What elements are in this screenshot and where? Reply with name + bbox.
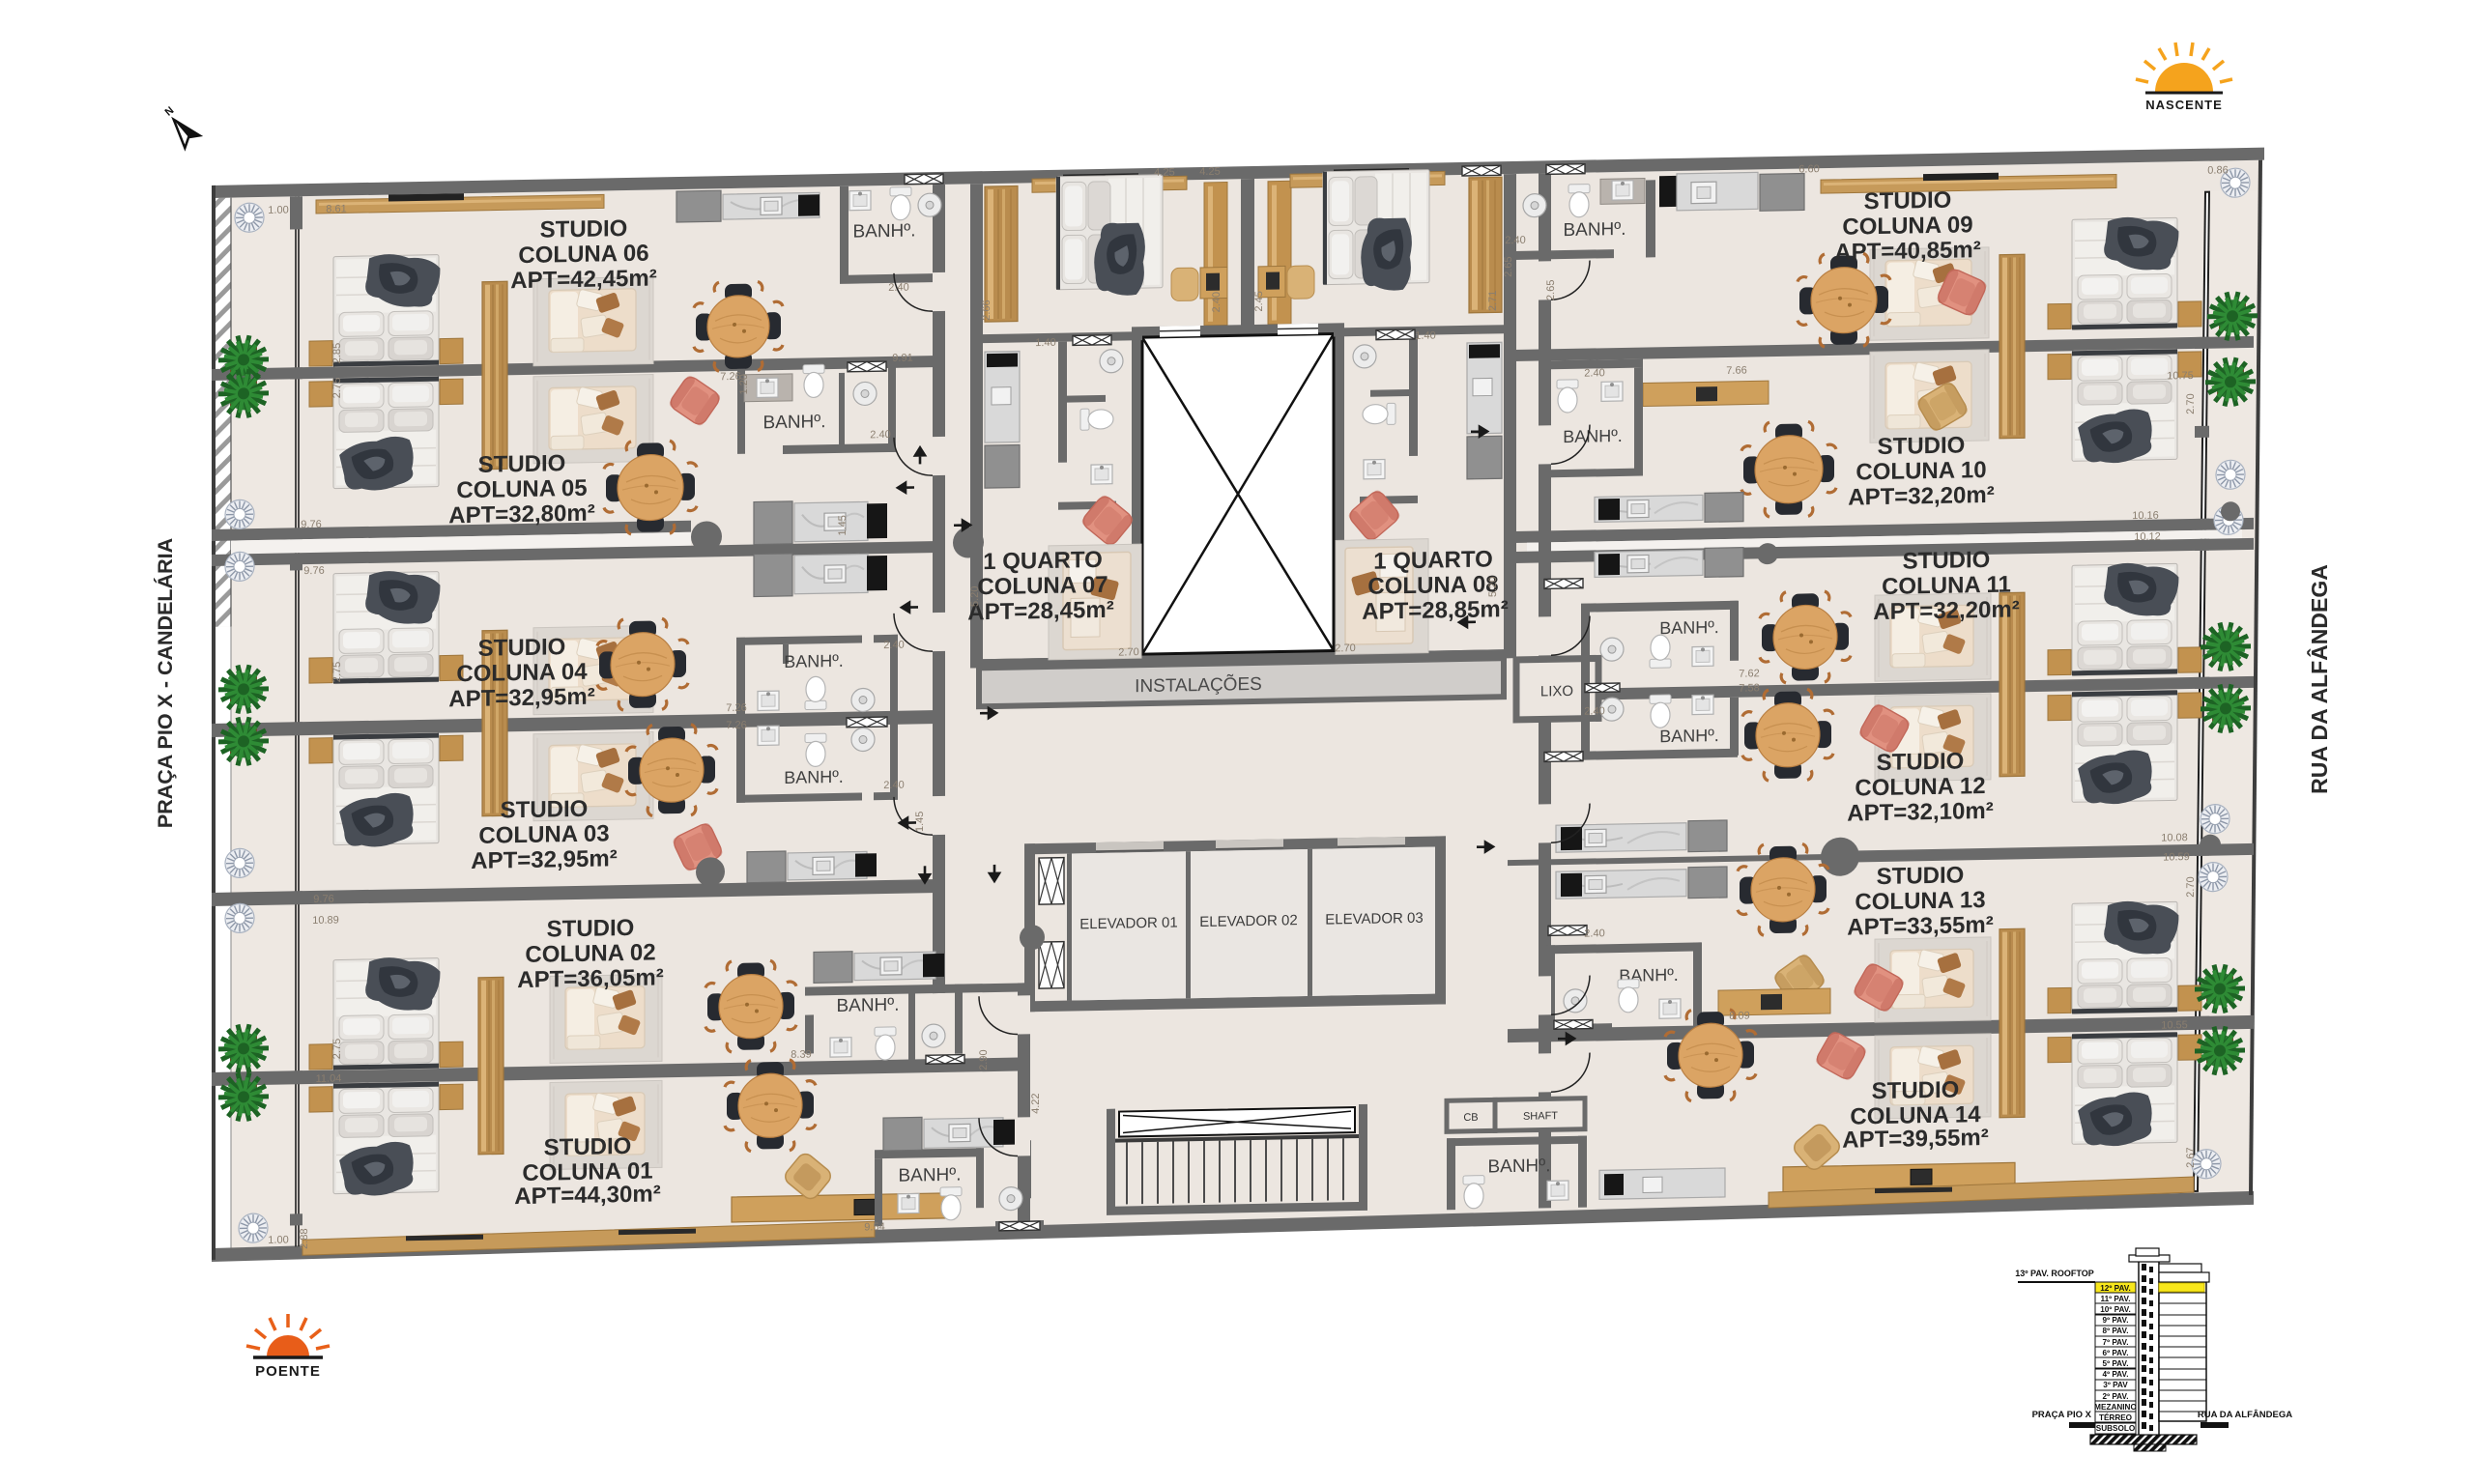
svg-text:7º PAV.: 7º PAV. — [2103, 1338, 2129, 1347]
svg-text:STUDIO: STUDIO — [501, 796, 589, 824]
svg-text:9º PAV.: 9º PAV. — [2103, 1316, 2129, 1325]
svg-text:APT=36,05m²: APT=36,05m² — [517, 964, 663, 993]
svg-text:COLUNA 13: COLUNA 13 — [1855, 887, 1985, 915]
svg-text:BANHº.: BANHº. — [784, 651, 844, 671]
svg-text:8.39: 8.39 — [791, 1048, 811, 1060]
svg-text:APT=40,85m²: APT=40,85m² — [1834, 237, 1980, 266]
svg-text:STUDIO: STUDIO — [1864, 187, 1952, 215]
svg-text:5.20: 5.20 — [1487, 577, 1499, 598]
svg-text:COLUNA 08: COLUNA 08 — [1367, 571, 1498, 599]
svg-text:0.86: 0.86 — [2207, 164, 2228, 176]
svg-text:PRAÇA PIO X: PRAÇA PIO X — [2032, 1410, 2092, 1420]
svg-text:BANHº.: BANHº. — [1659, 726, 1719, 746]
svg-text:COLUNA 11: COLUNA 11 — [1882, 571, 2011, 599]
svg-text:RUA DA ALFÂNDEGA: RUA DA ALFÂNDEGA — [2306, 564, 2332, 794]
svg-text:APT=42,45m²: APT=42,45m² — [510, 265, 656, 294]
svg-text:STUDIO: STUDIO — [478, 634, 566, 662]
svg-text:2.40: 2.40 — [1211, 292, 1223, 313]
svg-text:BANHº.: BANHº. — [1563, 219, 1625, 241]
svg-text:1 QUARTO: 1 QUARTO — [983, 547, 1103, 575]
svg-text:APT=33,55m²: APT=33,55m² — [1847, 912, 1993, 941]
svg-text:10.89: 10.89 — [312, 915, 339, 927]
svg-text:COLUNA 04: COLUNA 04 — [456, 659, 588, 688]
svg-text:2.40: 2.40 — [1505, 235, 1525, 246]
svg-text:ELEVADOR 03: ELEVADOR 03 — [1325, 910, 1423, 928]
svg-text:2.70: 2.70 — [2185, 393, 2197, 414]
svg-text:2.65: 2.65 — [1545, 279, 1557, 300]
svg-text:STUDIO: STUDIO — [544, 1133, 632, 1161]
svg-text:2.40: 2.40 — [883, 640, 904, 651]
svg-text:6º PAV.: 6º PAV. — [2103, 1349, 2129, 1357]
svg-text:10.12: 10.12 — [2134, 531, 2161, 544]
svg-text:9.91: 9.91 — [892, 353, 912, 364]
svg-text:6.60: 6.60 — [1798, 163, 1819, 175]
svg-text:2.65: 2.65 — [1503, 256, 1514, 277]
svg-text:10º PAV.: 10º PAV. — [2100, 1305, 2131, 1314]
svg-text:8.09: 8.09 — [1729, 1010, 1749, 1021]
svg-text:8.61: 8.61 — [326, 203, 346, 214]
svg-text:10.08: 10.08 — [2161, 832, 2188, 844]
svg-text:STUDIO: STUDIO — [478, 450, 566, 478]
svg-text:2.45: 2.45 — [1253, 291, 1265, 312]
svg-text:STUDIO: STUDIO — [540, 215, 628, 243]
svg-text:2.40: 2.40 — [870, 429, 890, 441]
svg-text:9.76: 9.76 — [303, 565, 324, 577]
svg-text:2.66: 2.66 — [981, 300, 992, 321]
svg-text:CB: CB — [1463, 1112, 1478, 1124]
svg-text:11º PAV.: 11º PAV. — [2100, 1295, 2130, 1303]
svg-text:COLUNA 10: COLUNA 10 — [1855, 457, 1986, 485]
svg-text:1 QUARTO: 1 QUARTO — [1373, 546, 1493, 574]
svg-text:2.40: 2.40 — [1584, 367, 1604, 379]
svg-text:BANHº.: BANHº. — [898, 1165, 961, 1186]
svg-text:5.20: 5.20 — [969, 586, 981, 608]
svg-text:2.75: 2.75 — [331, 662, 343, 683]
svg-text:APT=39,55m²: APT=39,55m² — [1842, 1125, 1988, 1154]
svg-text:RUA DA ALFÂNDEGA: RUA DA ALFÂNDEGA — [2198, 1409, 2292, 1420]
svg-text:APT=28,85m²: APT=28,85m² — [1362, 596, 1508, 625]
svg-text:1.00: 1.00 — [268, 1234, 288, 1245]
svg-text:LIXO: LIXO — [1540, 683, 1573, 700]
svg-text:10.75: 10.75 — [2167, 370, 2194, 383]
svg-text:COLUNA 12: COLUNA 12 — [1855, 773, 1985, 801]
svg-text:7.62: 7.62 — [1739, 668, 1759, 679]
svg-text:2.40: 2.40 — [883, 780, 904, 791]
svg-text:1.40: 1.40 — [1415, 330, 1435, 342]
svg-text:2.40: 2.40 — [1584, 705, 1604, 717]
svg-text:APT=32,95m²: APT=32,95m² — [448, 684, 594, 713]
svg-text:SUBSOLO: SUBSOLO — [2096, 1424, 2136, 1433]
svg-text:4º PAV.: 4º PAV. — [2103, 1370, 2129, 1379]
svg-text:COLUNA 02: COLUNA 02 — [525, 939, 655, 967]
svg-text:2.88: 2.88 — [299, 1228, 310, 1249]
svg-text:POENTE: POENTE — [255, 1363, 321, 1380]
svg-text:COLUNA 09: COLUNA 09 — [1842, 212, 1972, 240]
svg-text:APT=32,10m²: APT=32,10m² — [1847, 798, 1993, 827]
svg-text:STUDIO: STUDIO — [1877, 748, 1965, 776]
svg-text:APT=32,20m²: APT=32,20m² — [1873, 596, 2019, 625]
svg-text:1.45: 1.45 — [837, 515, 849, 536]
svg-text:10.55: 10.55 — [2161, 1019, 2188, 1032]
svg-text:STUDIO: STUDIO — [1872, 1076, 1960, 1104]
svg-text:7.26: 7.26 — [726, 720, 746, 731]
svg-text:2.70: 2.70 — [1335, 642, 1355, 654]
svg-text:COLUNA 05: COLUNA 05 — [456, 475, 587, 503]
svg-text:7.66: 7.66 — [1726, 365, 1746, 377]
svg-text:2.90: 2.90 — [978, 1049, 990, 1070]
svg-text:ELEVADOR 02: ELEVADOR 02 — [1199, 912, 1297, 930]
svg-text:PRAÇA PIO X - CANDELÁRIA: PRAÇA PIO X - CANDELÁRIA — [153, 538, 177, 828]
svg-text:2.67: 2.67 — [2185, 1147, 2197, 1168]
svg-text:APT=32,95m²: APT=32,95m² — [471, 845, 617, 874]
svg-text:9.76: 9.76 — [313, 894, 333, 905]
svg-text:10.59: 10.59 — [2163, 851, 2190, 864]
svg-text:10.16: 10.16 — [2132, 510, 2159, 523]
svg-text:COLUNA 06: COLUNA 06 — [518, 241, 648, 269]
svg-text:STUDIO: STUDIO — [1877, 862, 1965, 890]
svg-text:STUDIO: STUDIO — [1903, 547, 1991, 575]
svg-text:INSTALAÇÕES: INSTALAÇÕES — [1135, 673, 1262, 697]
svg-text:2.85: 2.85 — [331, 343, 343, 364]
svg-text:BANHº.: BANHº. — [836, 995, 899, 1016]
svg-text:ELEVADOR 01: ELEVADOR 01 — [1079, 914, 1177, 932]
svg-text:7.26: 7.26 — [726, 702, 746, 714]
svg-text:BANHº.: BANHº. — [1659, 617, 1719, 638]
svg-text:4.22: 4.22 — [1030, 1093, 1042, 1114]
svg-text:BANHº.: BANHº. — [1487, 1156, 1550, 1177]
svg-text:2º PAV.: 2º PAV. — [2103, 1392, 2129, 1401]
svg-text:BANHº.: BANHº. — [762, 412, 825, 433]
svg-text:MEZANINO: MEZANINO — [2094, 1403, 2137, 1412]
svg-text:BANHº.: BANHº. — [852, 220, 915, 242]
svg-text:13º PAV. ROOFTOP: 13º PAV. ROOFTOP — [2015, 1269, 2093, 1278]
svg-text:COLUNA 07: COLUNA 07 — [977, 572, 1108, 600]
svg-text:2.70: 2.70 — [1118, 646, 1138, 658]
svg-text:APT=28,45m²: APT=28,45m² — [967, 597, 1113, 626]
svg-text:2.71: 2.71 — [1487, 291, 1499, 312]
svg-text:APT=32,80m²: APT=32,80m² — [448, 500, 594, 529]
svg-text:1.20: 1.20 — [738, 374, 750, 395]
svg-text:APT=32,20m²: APT=32,20m² — [1848, 482, 1994, 511]
svg-text:1.45: 1.45 — [914, 812, 926, 833]
svg-text:STUDIO: STUDIO — [1878, 432, 1966, 460]
svg-text:1.40: 1.40 — [1035, 337, 1055, 349]
svg-text:APT=44,30m²: APT=44,30m² — [514, 1181, 660, 1210]
svg-text:4.25: 4.25 — [1199, 166, 1220, 178]
svg-text:2.40: 2.40 — [1584, 927, 1604, 939]
svg-text:9.76: 9.76 — [301, 519, 321, 530]
svg-text:NASCENTE: NASCENTE — [2145, 98, 2223, 112]
svg-text:2.75: 2.75 — [331, 1039, 343, 1060]
svg-text:8º PAV.: 8º PAV. — [2103, 1327, 2129, 1335]
svg-text:12º PAV.: 12º PAV. — [2100, 1284, 2131, 1293]
svg-text:11.04: 11.04 — [316, 1072, 342, 1084]
svg-text:TÉRREO: TÉRREO — [2099, 1413, 2133, 1422]
svg-text:2.75: 2.75 — [331, 378, 343, 399]
svg-text:N: N — [163, 104, 177, 118]
svg-text:BANHº.: BANHº. — [784, 767, 844, 787]
svg-text:1.00: 1.00 — [268, 204, 288, 215]
svg-text:STUDIO: STUDIO — [547, 915, 635, 943]
svg-text:2.70: 2.70 — [2185, 876, 2197, 898]
svg-text:4.25: 4.25 — [1154, 167, 1174, 179]
svg-text:3º PAV: 3º PAV — [2103, 1381, 2128, 1389]
svg-text:BANHº.: BANHº. — [1563, 426, 1623, 446]
svg-text:5º PAV.: 5º PAV. — [2103, 1359, 2129, 1368]
svg-text:COLUNA 03: COLUNA 03 — [478, 820, 609, 848]
svg-text:SHAFT: SHAFT — [1523, 1110, 1558, 1123]
svg-text:9.54: 9.54 — [864, 1221, 884, 1233]
svg-text:7.58: 7.58 — [1739, 682, 1759, 694]
svg-text:2.40: 2.40 — [888, 282, 908, 294]
